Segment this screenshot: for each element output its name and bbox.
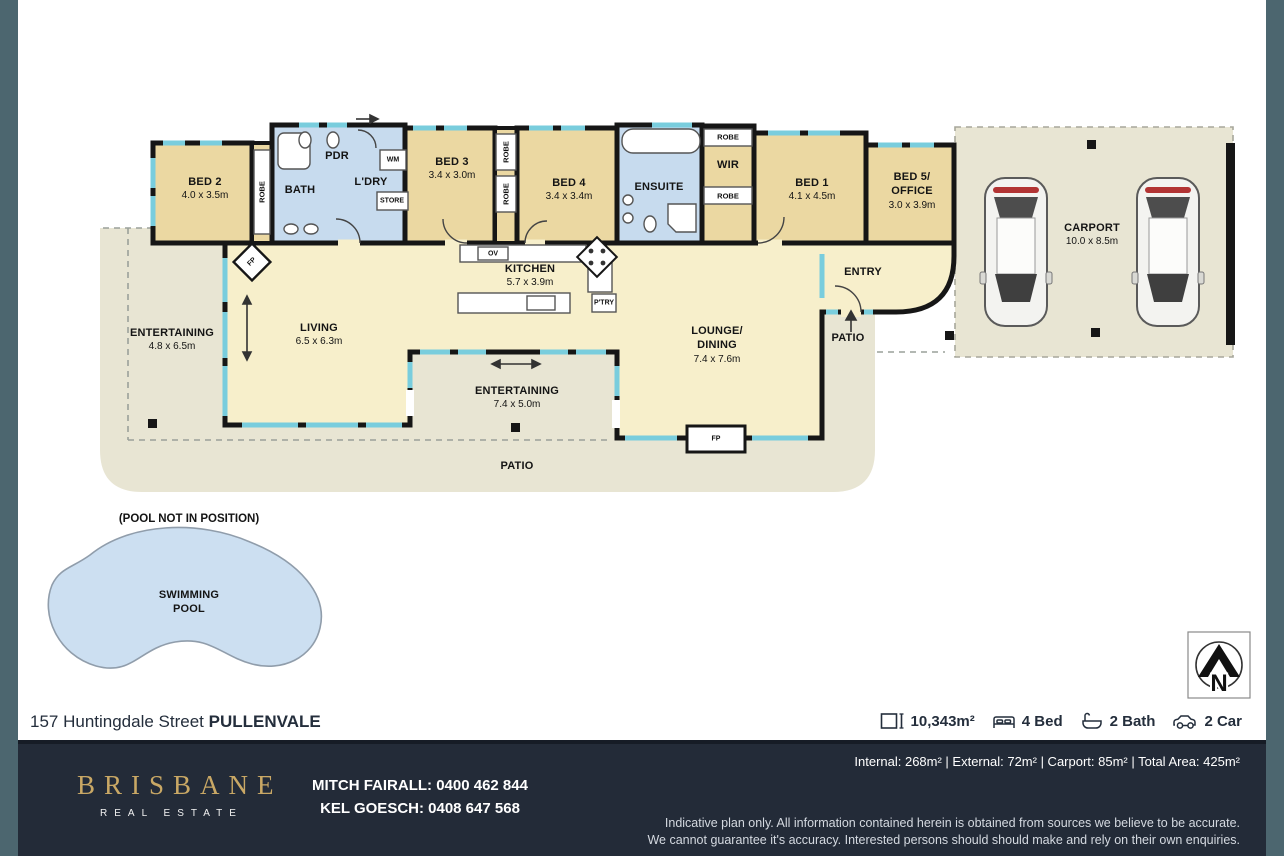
north-letter: N	[1210, 670, 1227, 697]
disclaimer-line: Indicative plan only. All information co…	[647, 815, 1240, 832]
bathtub	[622, 129, 700, 153]
basin	[284, 224, 298, 234]
room-label-entry: ENTRY	[844, 265, 882, 279]
bed-count-item: 4 Bed	[992, 711, 1063, 731]
left-edge-stripe	[0, 0, 18, 856]
car-count-item: 2 Car	[1172, 711, 1242, 731]
address-street: 157 Huntingdale Street	[30, 712, 209, 731]
room-label-pdr: PDR	[325, 149, 349, 163]
footer: BRISBANE REAL ESTATE MITCH FAIRALL: 0400…	[0, 740, 1284, 856]
toilet	[299, 132, 311, 148]
robe-label: ROBE	[258, 181, 267, 203]
car-icon	[1172, 711, 1198, 731]
room-label-bed1: BED 1 4.1 x 4.5m	[789, 176, 836, 203]
basin	[304, 224, 318, 234]
room-label-ldry: L'DRY	[354, 175, 387, 189]
room-label-patio-right: PATIO	[832, 331, 865, 345]
sink	[527, 296, 555, 310]
car-count-value: 2 Car	[1204, 713, 1242, 730]
agency-logo: BRISBANE REAL ESTATE	[68, 770, 268, 819]
disclaimer: Indicative plan only. All information co…	[647, 815, 1240, 849]
property-address: 157 Huntingdale Street PULLENVALE	[30, 712, 321, 732]
agent-contacts: MITCH FAIRALL: 0400 462 844 KEL GOESCH: …	[300, 775, 540, 820]
bath-count-value: 2 Bath	[1110, 713, 1156, 730]
store-label: STORE	[380, 198, 404, 205]
basin	[623, 213, 633, 223]
land-size-icon	[880, 711, 905, 731]
bed-icon	[992, 711, 1016, 731]
room-label-entertaining-mid: ENTERTAINING 7.4 x 5.0m	[475, 384, 559, 411]
robe-label: ROBE	[502, 141, 511, 163]
robe-label: ROBE	[717, 133, 739, 142]
bath-count-item: 2 Bath	[1080, 711, 1156, 731]
property-summary: 10,343m² 4 Bed 2 Bath	[880, 711, 1242, 731]
address-suburb: PULLENVALE	[209, 712, 321, 731]
bed-count-value: 4 Bed	[1022, 713, 1063, 730]
land-size-value: 10,343m²	[911, 713, 975, 730]
washing-machine-label: WM	[387, 157, 399, 164]
shower	[668, 204, 696, 232]
room-label-bed4: BED 4 3.4 x 3.4m	[546, 176, 593, 203]
pool-note: (POOL NOT IN POSITION)	[119, 512, 259, 527]
room-label-carport: CARPORT 10.0 x 8.5m	[1064, 221, 1120, 248]
basin	[623, 195, 633, 205]
room-label-wir: WIR	[717, 158, 739, 172]
room-label-bed5: BED 5/ OFFICE 3.0 x 3.9m	[889, 170, 936, 212]
agency-name: BRISBANE	[68, 770, 268, 801]
room-label-lounge-dining: LOUNGE/ DINING 7.4 x 7.6m	[691, 324, 743, 366]
room-label-living: LIVING 6.5 x 6.3m	[296, 321, 343, 348]
agency-tagline: REAL ESTATE	[68, 808, 268, 819]
room-label-kitchen: KITCHEN 5.7 x 3.9m	[505, 262, 555, 289]
pool-label: SWIMMING POOL	[159, 588, 219, 617]
agent-contact: KEL GOESCH: 0408 647 568	[300, 798, 540, 821]
room-label-bed2: BED 2 4.0 x 3.5m	[182, 175, 229, 202]
room-label-entertaining-left: ENTERTAINING 4.8 x 6.5m	[130, 326, 214, 353]
room-bed3	[405, 128, 495, 243]
room-label-ensuite: ENSUITE	[634, 180, 683, 194]
land-size-item: 10,343m²	[880, 711, 975, 731]
fireplace-label: FP	[712, 436, 721, 443]
north-arrow: N	[1188, 632, 1250, 698]
right-edge-stripe	[1266, 0, 1284, 856]
agent-contact: MITCH FAIRALL: 0400 462 844	[300, 775, 540, 798]
toilet	[644, 216, 656, 232]
robe-label: ROBE	[717, 192, 739, 201]
bath-icon	[1080, 711, 1104, 731]
top-door-arrow	[370, 115, 378, 123]
oven-label: OV	[488, 251, 498, 258]
room-label-patio-bottom: PATIO	[501, 459, 534, 473]
room-label-bath: BATH	[285, 183, 316, 197]
robe-label: ROBE	[502, 183, 511, 205]
disclaimer-line: We cannot guarantee it's accuracy. Inter…	[647, 832, 1240, 849]
pantry-label: P'TRY	[594, 300, 614, 307]
room-label-bed3: BED 3 3.4 x 3.0m	[429, 155, 476, 182]
area-measurements: Internal: 268m² | External: 72m² | Carpo…	[854, 754, 1240, 769]
floor-plan-flyer: N BED 2 4.0 x 3.5m BATH PDR L'DRY BED 3 …	[0, 0, 1284, 856]
toilet	[327, 132, 339, 148]
